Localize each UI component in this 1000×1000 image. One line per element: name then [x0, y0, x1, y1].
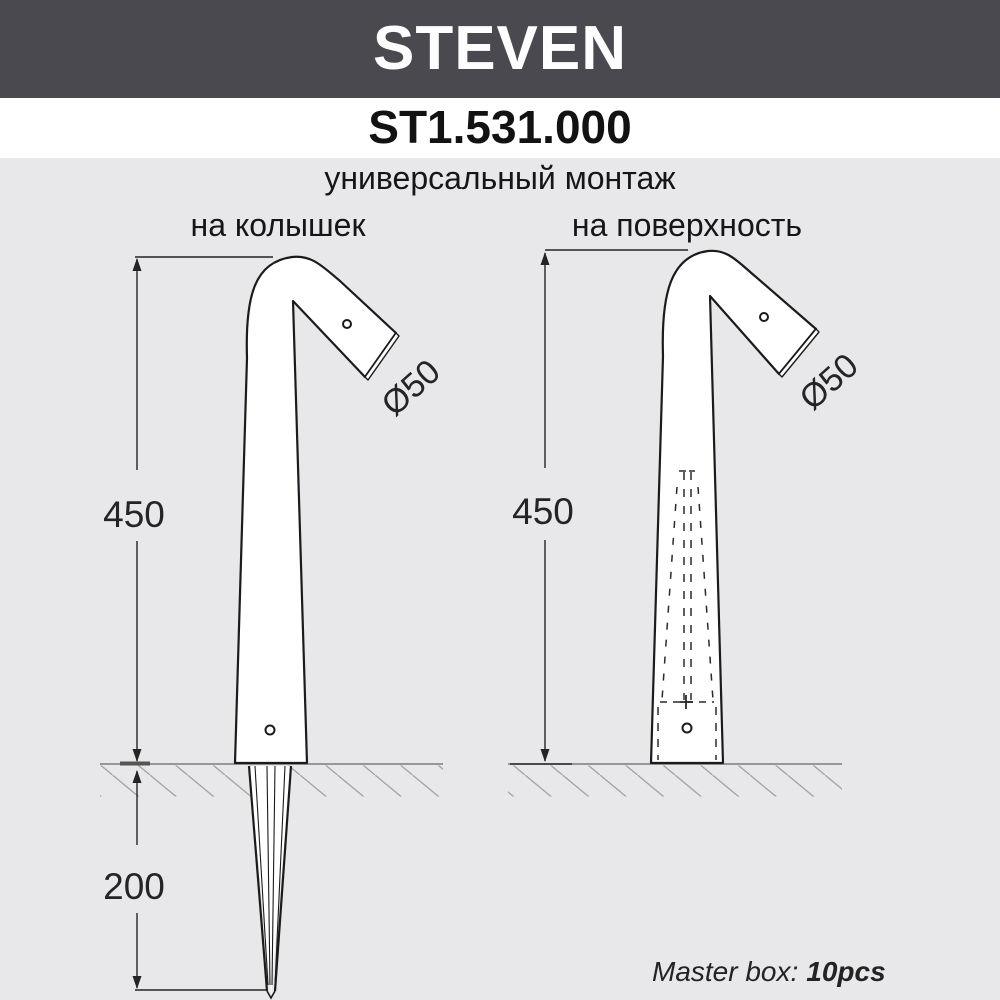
screw-hole-base	[683, 724, 692, 733]
dim-label-450-right: 450	[512, 491, 574, 532]
screw-hole-base	[266, 726, 275, 735]
master-box-qty: 10pcs	[806, 956, 885, 987]
master-box-note: Master box:10pcs	[652, 956, 952, 988]
dim-label-diameter-left: Ø50	[374, 352, 447, 423]
ground-hatch-right	[508, 766, 842, 797]
screw-hole-head	[343, 320, 351, 328]
dim-label-diameter-right: Ø50	[792, 346, 865, 417]
technical-drawing: 450 200 Ø50	[0, 0, 1000, 1000]
ground-tick-left	[120, 762, 150, 766]
stake-mount-drawing: 450 200 Ø50	[100, 257, 448, 998]
screw-hole-head	[760, 313, 768, 321]
ground-spike	[249, 766, 291, 998]
dim-label-450-left: 450	[103, 494, 165, 535]
dim-label-200: 200	[103, 866, 165, 907]
master-box-label: Master box:	[652, 956, 798, 987]
surface-mount-drawing: 450 Ø50	[508, 250, 866, 797]
lamp-body-stake	[235, 257, 396, 763]
